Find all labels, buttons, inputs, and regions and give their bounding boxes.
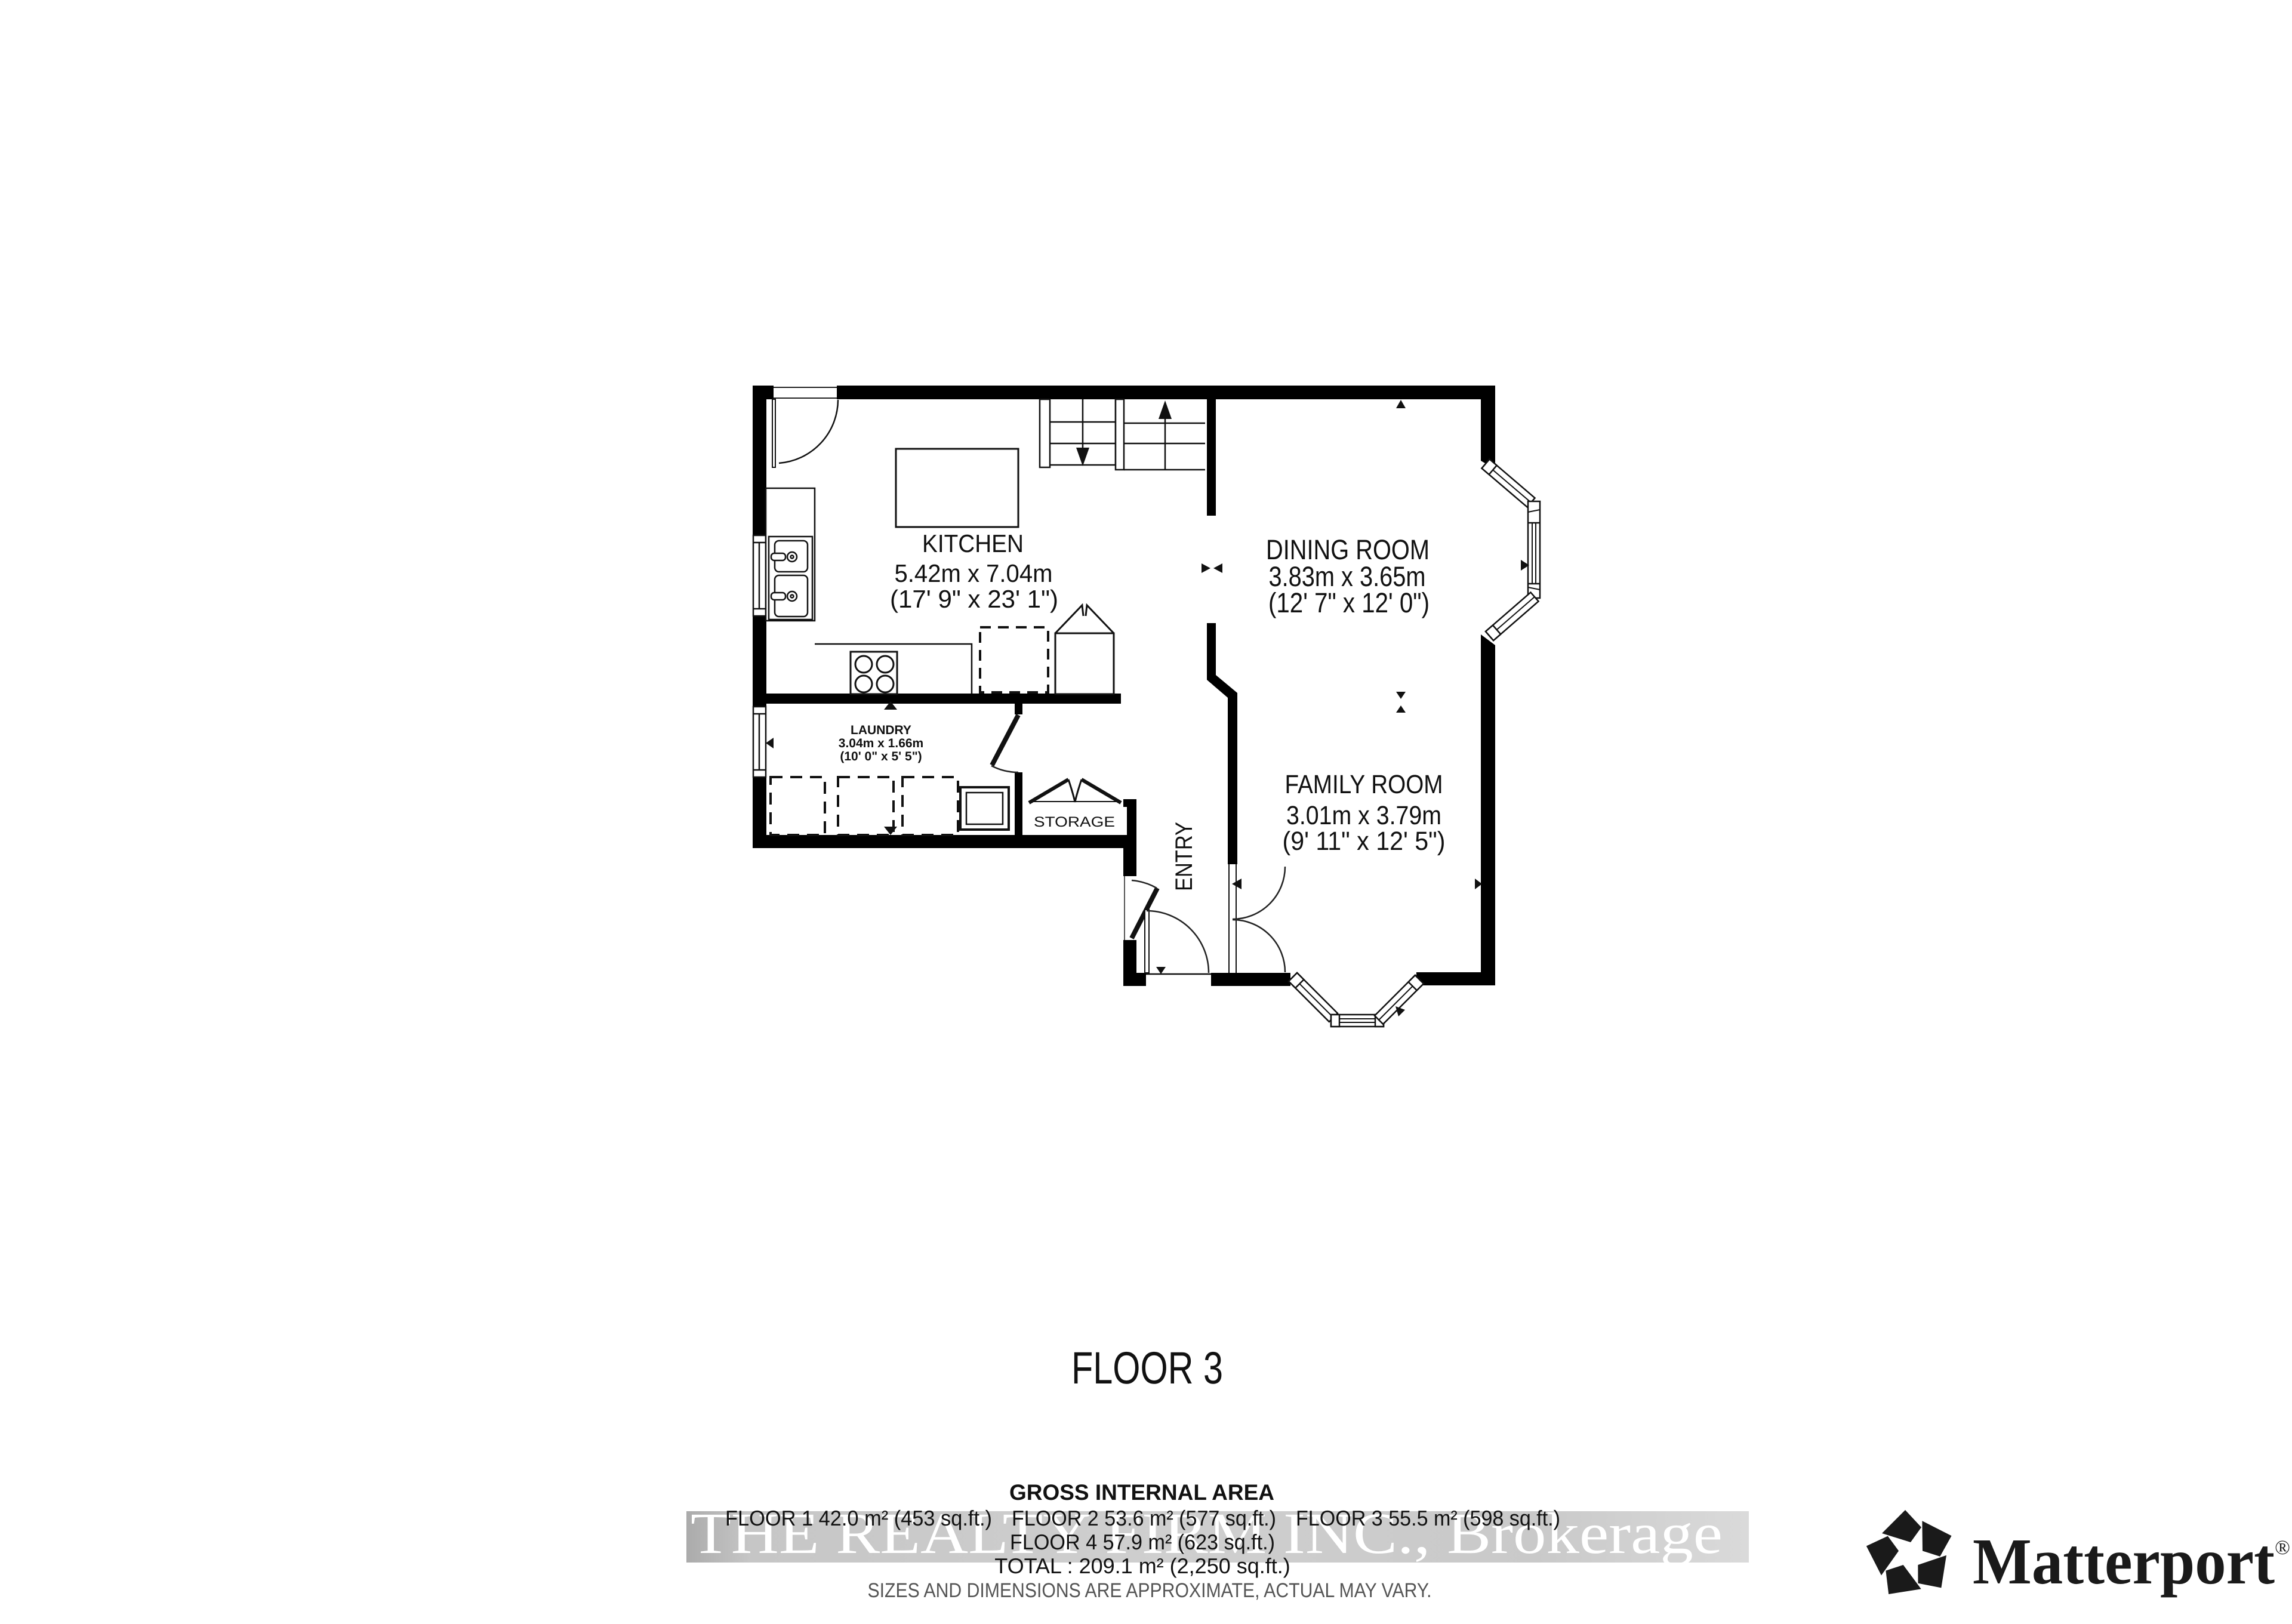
svg-text:(10' 0" x 5' 5"): (10' 0" x 5' 5"): [840, 750, 922, 763]
svg-text:STORAGE: STORAGE: [1034, 814, 1115, 830]
svg-text:®: ®: [2275, 1537, 2290, 1559]
svg-text:FLOOR 3 55.5 m² (598 sq.ft.): FLOOR 3 55.5 m² (598 sq.ft.): [1296, 1506, 1560, 1530]
svg-text:5.42m x 7.04m: 5.42m x 7.04m: [895, 559, 1053, 587]
svg-text:KITCHEN: KITCHEN: [922, 529, 1024, 557]
svg-text:3.04m x 1.66m: 3.04m x 1.66m: [839, 736, 923, 750]
svg-text:(9' 11" x 12' 5"): (9' 11" x 12' 5"): [1283, 827, 1446, 856]
svg-text:ENTRY: ENTRY: [1171, 822, 1197, 891]
svg-text:FLOOR 4 57.9 m² (623 sq.ft.): FLOOR 4 57.9 m² (623 sq.ft.): [1010, 1530, 1275, 1554]
svg-text:(12' 7" x 12' 0"): (12' 7" x 12' 0"): [1268, 587, 1430, 618]
svg-text:SIZES AND DIMENSIONS ARE APPRO: SIZES AND DIMENSIONS ARE APPROXIMATE, AC…: [868, 1579, 1432, 1602]
svg-text:3.01m x 3.79m: 3.01m x 3.79m: [1286, 801, 1441, 830]
svg-text:LAUNDRY: LAUNDRY: [851, 723, 911, 737]
svg-text:Matterport: Matterport: [1973, 1525, 2275, 1598]
svg-text:(17' 9" x 23' 1"): (17' 9" x 23' 1"): [890, 585, 1058, 613]
svg-text:GROSS INTERNAL AREA: GROSS INTERNAL AREA: [1009, 1480, 1274, 1505]
svg-text:FAMILY ROOM: FAMILY ROOM: [1285, 770, 1443, 799]
svg-text:FLOOR 3: FLOOR 3: [1071, 1343, 1223, 1394]
svg-text:FLOOR 2 53.6 m² (577 sq.ft.): FLOOR 2 53.6 m² (577 sq.ft.): [1012, 1506, 1276, 1530]
svg-text:TOTAL : 209.1 m² (2,250 sq.ft: TOTAL : 209.1 m² (2,250 sq.ft.): [994, 1554, 1290, 1578]
svg-text:FLOOR 1 42.0 m² (453 sq.ft.): FLOOR 1 42.0 m² (453 sq.ft.): [725, 1506, 992, 1530]
